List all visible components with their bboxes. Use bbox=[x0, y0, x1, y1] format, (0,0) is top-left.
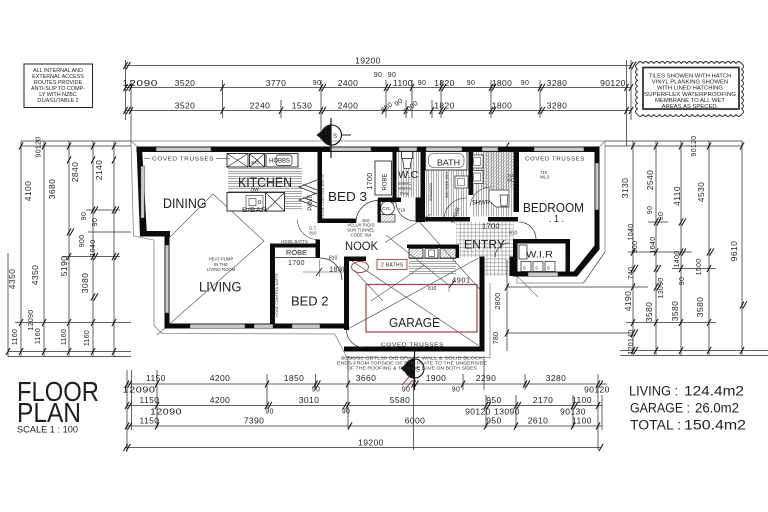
svg-text:ROBE: ROBE bbox=[383, 173, 389, 190]
svg-text:CYL: CYL bbox=[382, 206, 391, 211]
svg-text:90: 90 bbox=[467, 80, 475, 87]
svg-text:. 1 .: . 1 . bbox=[549, 214, 564, 225]
svg-text:120140: 120140 bbox=[628, 329, 635, 354]
svg-text:19200: 19200 bbox=[355, 56, 381, 66]
svg-text:90: 90 bbox=[342, 409, 350, 416]
svg-text:4190: 4190 bbox=[623, 291, 633, 312]
svg-text:D1/AS1/TABLE 2: D1/AS1/TABLE 2 bbox=[37, 98, 78, 104]
svg-text:1850: 1850 bbox=[284, 373, 305, 383]
svg-text:1150: 1150 bbox=[140, 395, 160, 405]
svg-text:BED 2: BED 2 bbox=[291, 295, 329, 309]
svg-text:3580: 3580 bbox=[670, 301, 680, 322]
svg-text:COVED TRUSSES: COVED TRUSSES bbox=[525, 157, 585, 163]
svg-text:1530: 1530 bbox=[292, 100, 313, 110]
svg-text:S: S bbox=[523, 266, 526, 271]
svg-text:90: 90 bbox=[679, 277, 686, 285]
svg-text:BATH: BATH bbox=[437, 159, 460, 168]
svg-text:3280: 3280 bbox=[547, 100, 568, 110]
svg-text:1100: 1100 bbox=[572, 395, 592, 405]
svg-text:1160: 1160 bbox=[61, 329, 68, 345]
svg-text:DRAIL: DRAIL bbox=[514, 257, 518, 268]
svg-text:ENTRY: ENTRY bbox=[464, 238, 505, 252]
svg-text:90: 90 bbox=[81, 212, 88, 220]
svg-text:SHWR: SHWR bbox=[472, 201, 491, 207]
svg-text:9610: 9610 bbox=[729, 241, 739, 262]
svg-text:HOSE BATTS: HOSE BATTS bbox=[281, 239, 308, 244]
svg-text:12090: 12090 bbox=[28, 310, 35, 331]
svg-text:900: 900 bbox=[79, 235, 86, 248]
svg-text:710: 710 bbox=[398, 208, 406, 213]
svg-text:VINYL PLANKING SHOWEN: VINYL PLANKING SHOWEN bbox=[652, 80, 728, 86]
svg-text:1100: 1100 bbox=[393, 78, 413, 88]
svg-text:3580: 3580 bbox=[644, 302, 654, 323]
svg-text:90: 90 bbox=[647, 206, 654, 214]
svg-text:1640: 1640 bbox=[650, 237, 657, 254]
svg-text:13090: 13090 bbox=[658, 278, 665, 299]
svg-text:1160: 1160 bbox=[12, 329, 19, 345]
svg-text:DW: DW bbox=[251, 188, 260, 194]
svg-text:950: 950 bbox=[486, 416, 501, 426]
svg-text:S: S bbox=[333, 134, 337, 140]
svg-text:LIVING: LIVING bbox=[199, 280, 242, 295]
svg-text:WITH LINED HATCHING: WITH LINED HATCHING bbox=[657, 86, 723, 92]
svg-text:3520: 3520 bbox=[175, 100, 196, 110]
svg-text:SCALE 1 : 100: SCALE 1 : 100 bbox=[17, 425, 78, 436]
svg-text:810: 810 bbox=[329, 256, 338, 262]
svg-text:3770: 3770 bbox=[266, 78, 287, 88]
svg-text:1700: 1700 bbox=[482, 222, 500, 231]
svg-text:12090: 12090 bbox=[122, 78, 158, 88]
svg-text:1800: 1800 bbox=[492, 100, 513, 110]
svg-text:WO: WO bbox=[251, 160, 259, 165]
svg-text:BED 3: BED 3 bbox=[328, 190, 367, 204]
svg-text:MEMBRANE TO ALL WET: MEMBRANE TO ALL WET bbox=[655, 98, 725, 104]
svg-text:NOOK: NOOK bbox=[345, 239, 378, 253]
svg-text:KITCHEN: KITCHEN bbox=[238, 175, 292, 190]
svg-text:HOBBS: HOBBS bbox=[269, 159, 290, 165]
svg-text:2540: 2540 bbox=[645, 170, 655, 191]
svg-text:4200: 4200 bbox=[210, 395, 231, 405]
svg-text:B/BAR: B/BAR bbox=[242, 208, 268, 214]
svg-text:810: 810 bbox=[309, 231, 317, 236]
svg-text:4530: 4530 bbox=[696, 182, 706, 203]
svg-text:124.4m2: 124.4m2 bbox=[684, 384, 744, 399]
svg-text:S: S bbox=[547, 266, 550, 271]
svg-text:W.C: W.C bbox=[398, 169, 419, 181]
svg-text:900x1000: 900x1000 bbox=[428, 182, 433, 200]
svg-text:810: 810 bbox=[428, 286, 437, 292]
svg-text:3080: 3080 bbox=[80, 273, 90, 294]
svg-text:BEDROOM: BEDROOM bbox=[523, 201, 584, 215]
svg-text:1820: 1820 bbox=[434, 100, 455, 110]
svg-text:1820: 1820 bbox=[434, 78, 455, 88]
svg-text:2290: 2290 bbox=[476, 373, 497, 383]
svg-text:5190: 5190 bbox=[59, 256, 69, 277]
svg-text:3520: 3520 bbox=[175, 78, 196, 88]
svg-text:90: 90 bbox=[313, 80, 321, 87]
svg-text:3580: 3580 bbox=[695, 297, 705, 318]
svg-text:1700: 1700 bbox=[367, 173, 374, 190]
svg-text:2800: 2800 bbox=[495, 293, 502, 310]
svg-text:TILES SHOWEN WITH HATCH: TILES SHOWEN WITH HATCH bbox=[649, 74, 732, 80]
svg-text:4200: 4200 bbox=[210, 373, 231, 383]
svg-text:2 BATHS: 2 BATHS bbox=[381, 263, 404, 269]
svg-text:90120: 90120 bbox=[600, 78, 626, 88]
svg-text:CODE 364: CODE 364 bbox=[351, 233, 372, 238]
svg-text:SUPERFLEX WATERPROOFING: SUPERFLEX WATERPROOFING bbox=[644, 92, 736, 98]
svg-text:HEAT PUMP: HEAT PUMP bbox=[209, 257, 234, 262]
svg-text:3280: 3280 bbox=[546, 373, 567, 383]
svg-text:1040: 1040 bbox=[90, 240, 97, 257]
svg-text:W.I.R: W.I.R bbox=[526, 250, 554, 260]
svg-text:90120: 90120 bbox=[691, 136, 698, 157]
svg-text:19200: 19200 bbox=[358, 438, 384, 448]
svg-text:WLS: WLS bbox=[507, 178, 516, 183]
svg-text:1040: 1040 bbox=[628, 224, 635, 241]
svg-text:HOSE CONTROL BATTS: HOSE CONTROL BATTS bbox=[275, 273, 279, 317]
svg-text:90: 90 bbox=[521, 80, 529, 87]
svg-text:4100: 4100 bbox=[23, 181, 33, 202]
svg-text:810: 810 bbox=[509, 231, 518, 237]
svg-text:1900: 1900 bbox=[426, 373, 447, 383]
svg-text:2140: 2140 bbox=[94, 160, 104, 181]
svg-text:5580: 5580 bbox=[390, 395, 411, 405]
svg-text:7390: 7390 bbox=[244, 416, 265, 426]
svg-text:4350: 4350 bbox=[7, 269, 17, 290]
svg-text:2400: 2400 bbox=[338, 78, 359, 88]
svg-text:90: 90 bbox=[265, 409, 273, 416]
svg-text:740: 740 bbox=[628, 267, 635, 280]
svg-text:GARAGE :: GARAGE : bbox=[630, 401, 690, 416]
svg-text:90: 90 bbox=[312, 387, 320, 394]
svg-text:S: S bbox=[535, 266, 538, 271]
svg-text:90: 90 bbox=[658, 212, 665, 220]
svg-text:IN THE: IN THE bbox=[214, 262, 228, 267]
svg-text:PANT: PANT bbox=[308, 195, 314, 211]
svg-text:1160: 1160 bbox=[35, 328, 42, 344]
svg-text:2610: 2610 bbox=[528, 416, 549, 426]
svg-text:90: 90 bbox=[452, 387, 460, 394]
svg-text:90: 90 bbox=[418, 80, 426, 87]
svg-text:950: 950 bbox=[486, 395, 501, 405]
svg-text:HOSE CONTROL BATTS: HOSE CONTROL BATTS bbox=[321, 174, 325, 218]
svg-text:DINING: DINING bbox=[163, 196, 207, 211]
svg-text:3660: 3660 bbox=[356, 373, 377, 383]
svg-text:600 WHB VAN: 600 WHB VAN bbox=[444, 172, 449, 198]
svg-text:3680: 3680 bbox=[47, 179, 57, 200]
svg-text:GARAGE: GARAGE bbox=[389, 315, 440, 330]
svg-text:ROBE: ROBE bbox=[286, 248, 307, 257]
svg-text:PAN: PAN bbox=[400, 191, 409, 196]
svg-text:1150: 1150 bbox=[140, 416, 160, 426]
svg-text:1400: 1400 bbox=[674, 251, 681, 268]
svg-text:90: 90 bbox=[374, 72, 382, 79]
svg-text:3130: 3130 bbox=[620, 178, 630, 199]
svg-text:1800: 1800 bbox=[492, 78, 513, 88]
svg-text:AREAS AS SPECED.: AREAS AS SPECED. bbox=[662, 104, 719, 110]
svg-text:WLS: WLS bbox=[540, 175, 549, 180]
svg-text:LIVING ROOM: LIVING ROOM bbox=[207, 267, 236, 272]
svg-text:26.0m2: 26.0m2 bbox=[695, 401, 739, 416]
svg-text:2400: 2400 bbox=[338, 100, 359, 110]
svg-text:12090: 12090 bbox=[123, 385, 156, 395]
svg-text:LIVING :: LIVING : bbox=[629, 384, 678, 399]
svg-text:1150: 1150 bbox=[146, 373, 166, 383]
svg-text:90120: 90120 bbox=[36, 137, 43, 158]
svg-text:150.4m2: 150.4m2 bbox=[684, 418, 746, 433]
svg-text:PLAN: PLAN bbox=[17, 397, 81, 428]
svg-text:4350: 4350 bbox=[30, 265, 40, 286]
svg-text:2170: 2170 bbox=[533, 395, 554, 405]
svg-text:4110: 4110 bbox=[672, 186, 682, 206]
svg-text:OF THE ROOFING & TO HAVE EAVE: OF THE ROOFING & TO HAVE EAVE ON BOTH SI… bbox=[347, 366, 477, 371]
svg-text:K2.6 INSULATION: K2.6 INSULATION bbox=[345, 270, 349, 302]
svg-text:810: 810 bbox=[362, 218, 370, 223]
svg-text:3010: 3010 bbox=[299, 395, 320, 405]
svg-text:COVED TRUSSES: COVED TRUSSES bbox=[381, 343, 444, 349]
svg-text:780: 780 bbox=[493, 332, 500, 345]
svg-text:1100: 1100 bbox=[572, 416, 592, 426]
svg-text:2840: 2840 bbox=[70, 162, 80, 183]
svg-text:6000: 6000 bbox=[405, 416, 426, 426]
svg-text:1500: 1500 bbox=[696, 259, 703, 276]
svg-text:90120: 90120 bbox=[584, 385, 610, 395]
svg-text:TOTAL :: TOTAL : bbox=[630, 418, 681, 433]
svg-text:COVED TRUSSES: COVED TRUSSES bbox=[152, 157, 214, 163]
svg-text:900: 900 bbox=[632, 241, 639, 254]
svg-text:1700: 1700 bbox=[288, 260, 305, 267]
svg-text:DRAIL: DRAIL bbox=[566, 257, 570, 268]
svg-text:3280: 3280 bbox=[547, 78, 568, 88]
svg-text:90: 90 bbox=[92, 218, 99, 226]
svg-text:2240: 2240 bbox=[250, 100, 271, 110]
svg-text:1160: 1160 bbox=[84, 330, 91, 346]
